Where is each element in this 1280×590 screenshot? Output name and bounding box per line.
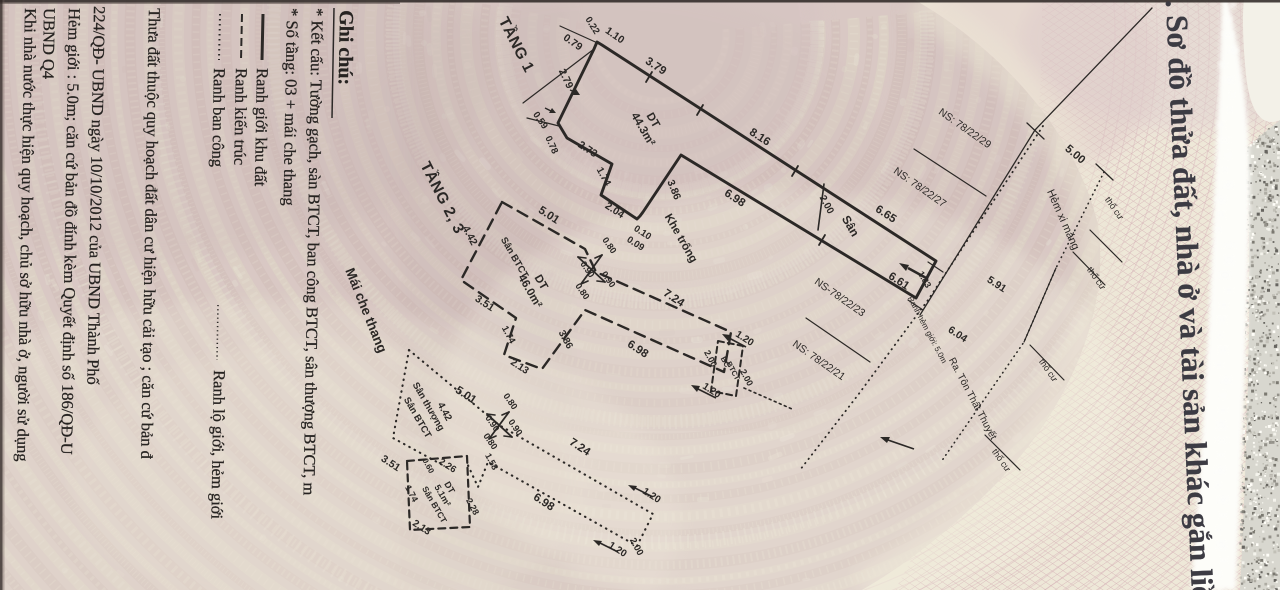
svg-text:Ghi chú:: Ghi chú: bbox=[334, 10, 357, 85]
svg-text:Ranh kiến trúc: Ranh kiến trúc bbox=[230, 68, 251, 165]
svg-text:Ranh lộ giới, hẻm giới: Ranh lộ giới, hẻm giới bbox=[207, 370, 229, 520]
svg-text:UBND Q4: UBND Q4 bbox=[39, 8, 59, 79]
svg-text:Ranh giới khu đất: Ranh giới khu đất bbox=[251, 68, 272, 187]
svg-text:Ranh ban công: Ranh ban công bbox=[208, 68, 229, 167]
svg-text:* Số tầng: 03 + mái che thang: * Số tầng: 03 + mái che thang bbox=[280, 8, 302, 206]
